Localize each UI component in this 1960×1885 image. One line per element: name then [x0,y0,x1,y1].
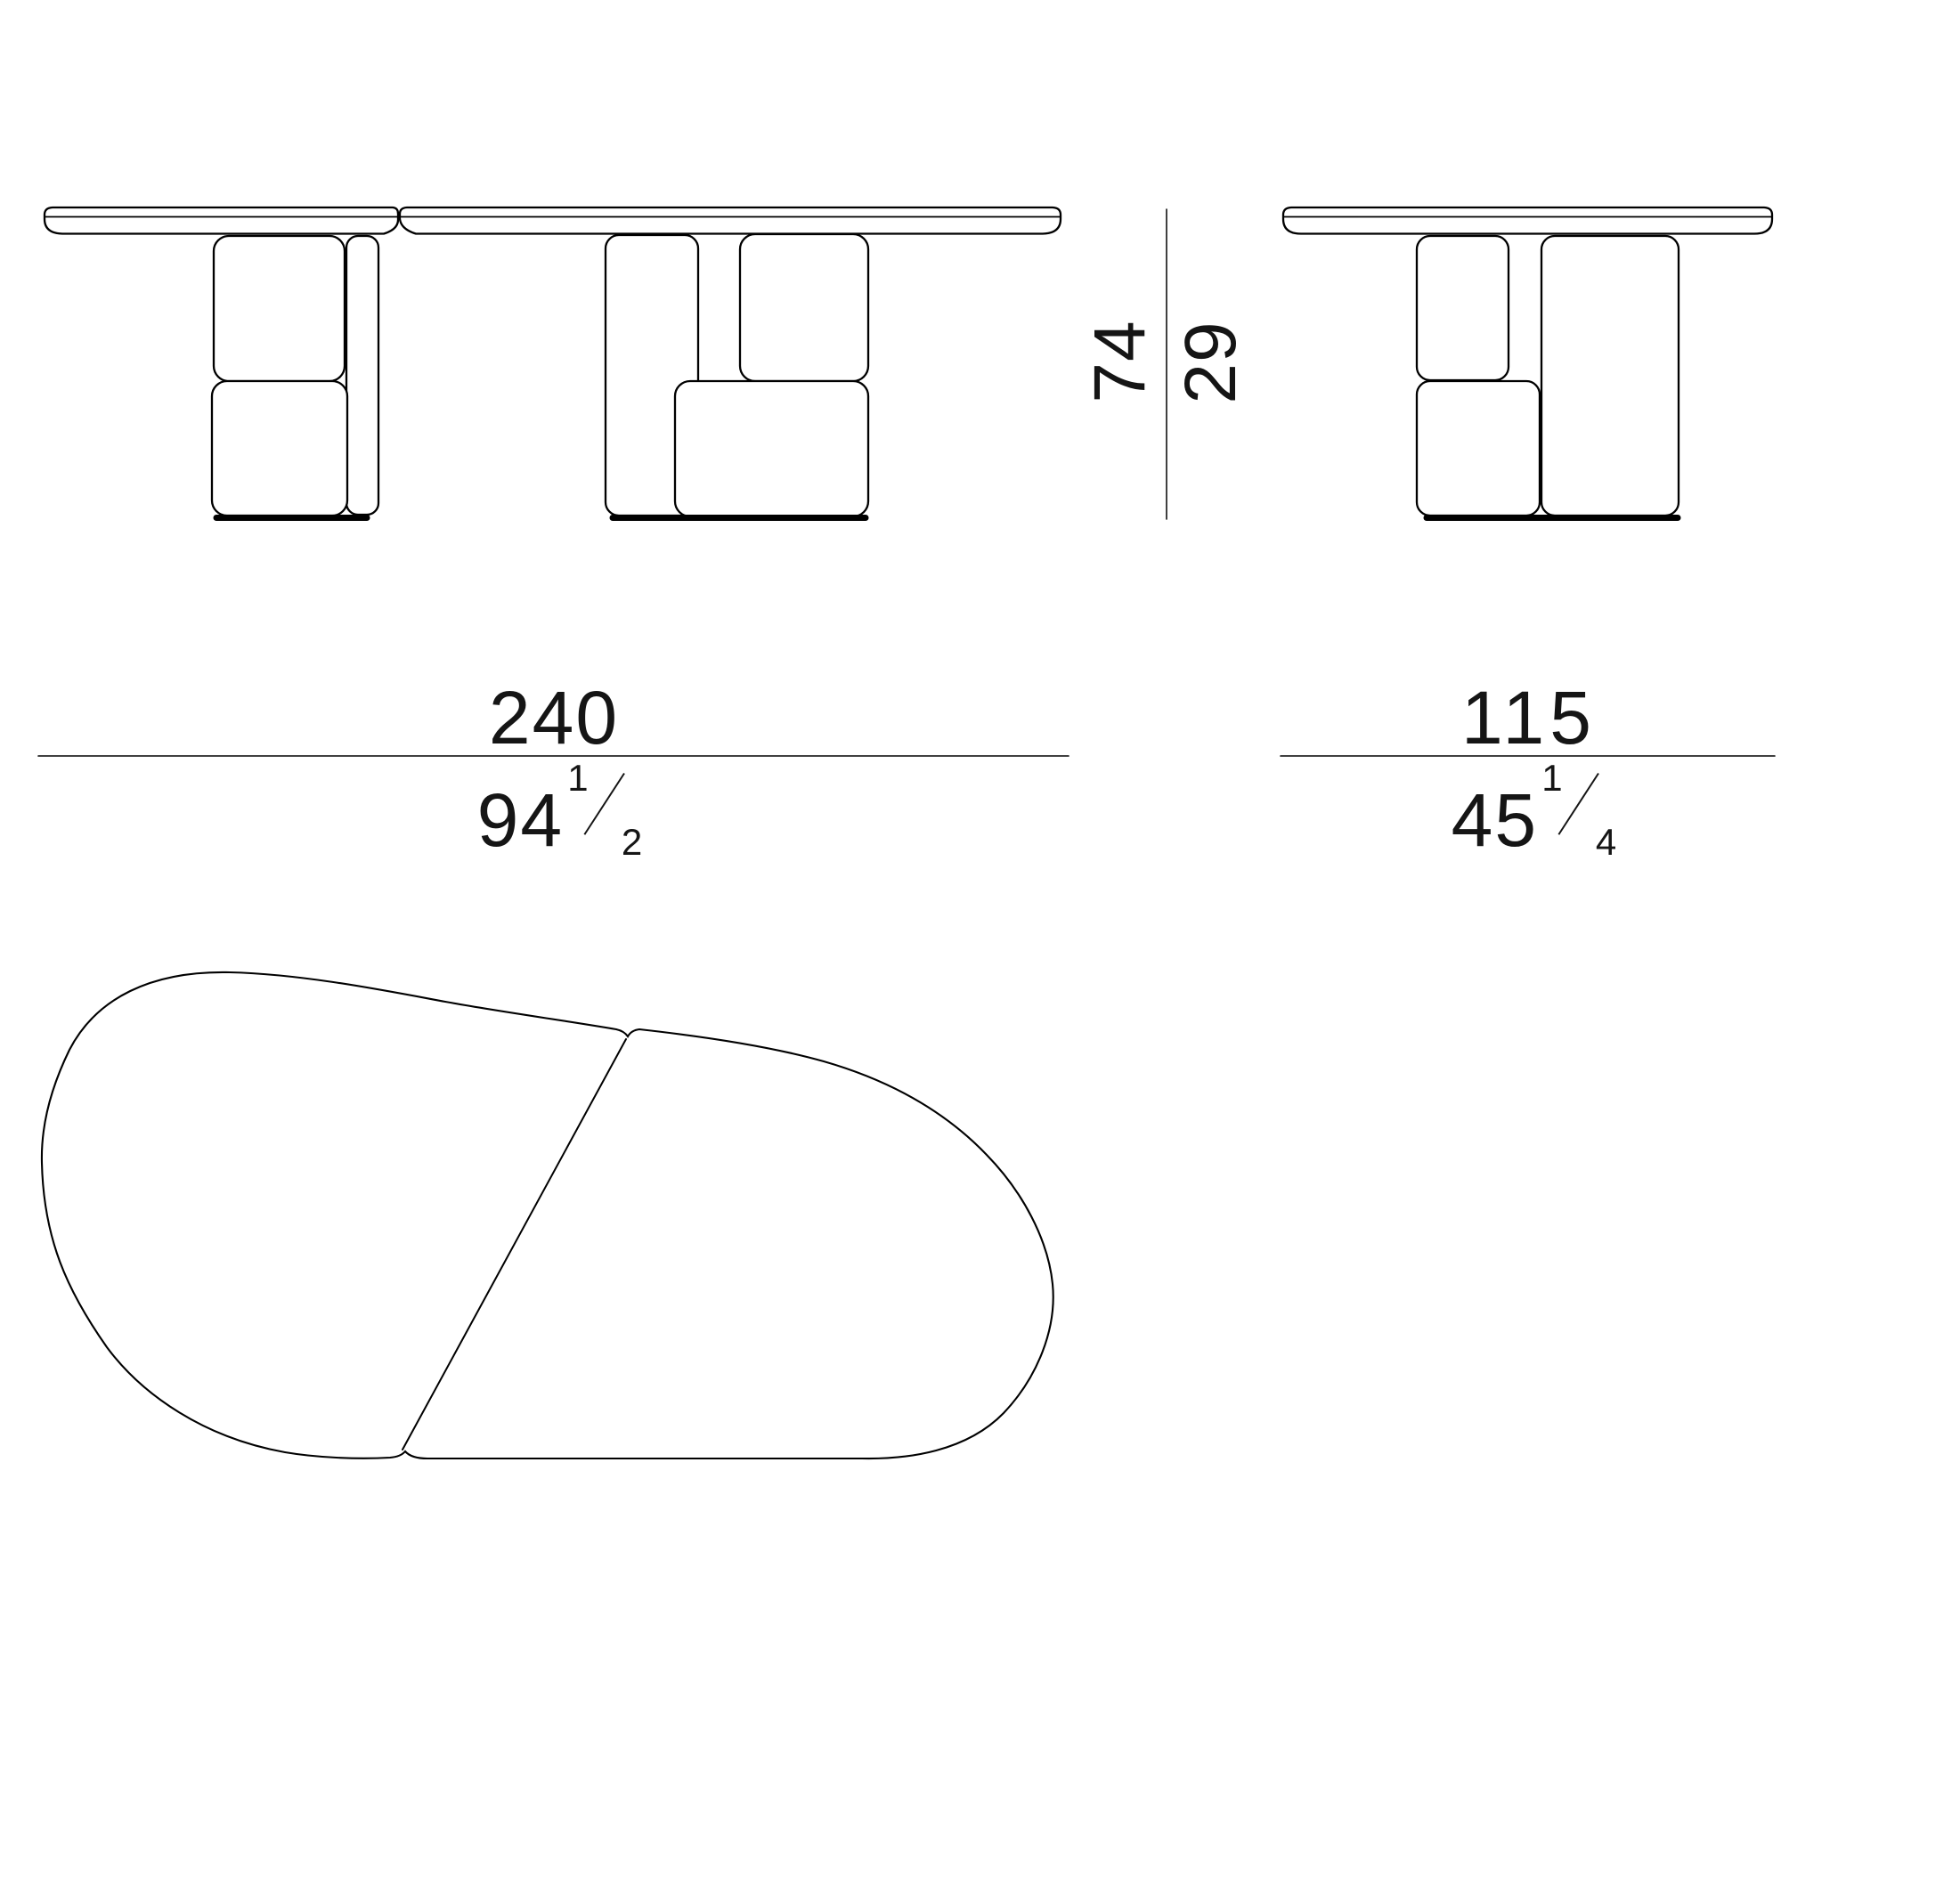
side-tabletop [1283,207,1772,234]
length-inches-whole: 94 [477,778,564,862]
depth-inches-whole: 45 [1452,778,1538,862]
fraction-slash [583,773,625,835]
plan-view [42,972,1053,1458]
fraction-slash [1557,773,1599,835]
depth-dimension-cm: 115 [1461,680,1597,755]
length-dimension-cm: 240 [489,680,619,755]
front-right-leg-lower [675,381,868,516]
depth-inches-fraction: 14 [1541,771,1615,846]
front-tabletop-left-piece [45,207,398,234]
side-right-leg [1541,236,1679,516]
fraction-numerator: 1 [1541,760,1562,797]
front-right-leg-upper [740,234,868,381]
side-left-leg-lower [1417,381,1540,516]
height-dimension-inches: 29 [1175,321,1248,403]
front-tabletop-right-piece [400,207,1061,234]
height-dimension-cm: 74 [1084,320,1157,402]
side-elevation [1283,207,1772,518]
front-elevation [45,207,1061,518]
fraction-denominator: 2 [622,824,642,861]
depth-dimension-inches: 4514 [1452,771,1616,857]
front-left-leg-lower [212,381,347,516]
fraction-numerator: 1 [567,760,588,797]
technical-drawing [0,0,1960,1885]
length-inches-fraction: 12 [566,771,641,846]
front-left-leg-upper [214,236,345,381]
front-left-leg-strip [346,236,378,515]
side-left-leg-upper [1417,236,1509,380]
length-dimension-inches: 9412 [477,771,642,857]
fraction-denominator: 4 [1596,824,1616,861]
plan-tabletop-outline [42,972,1053,1458]
